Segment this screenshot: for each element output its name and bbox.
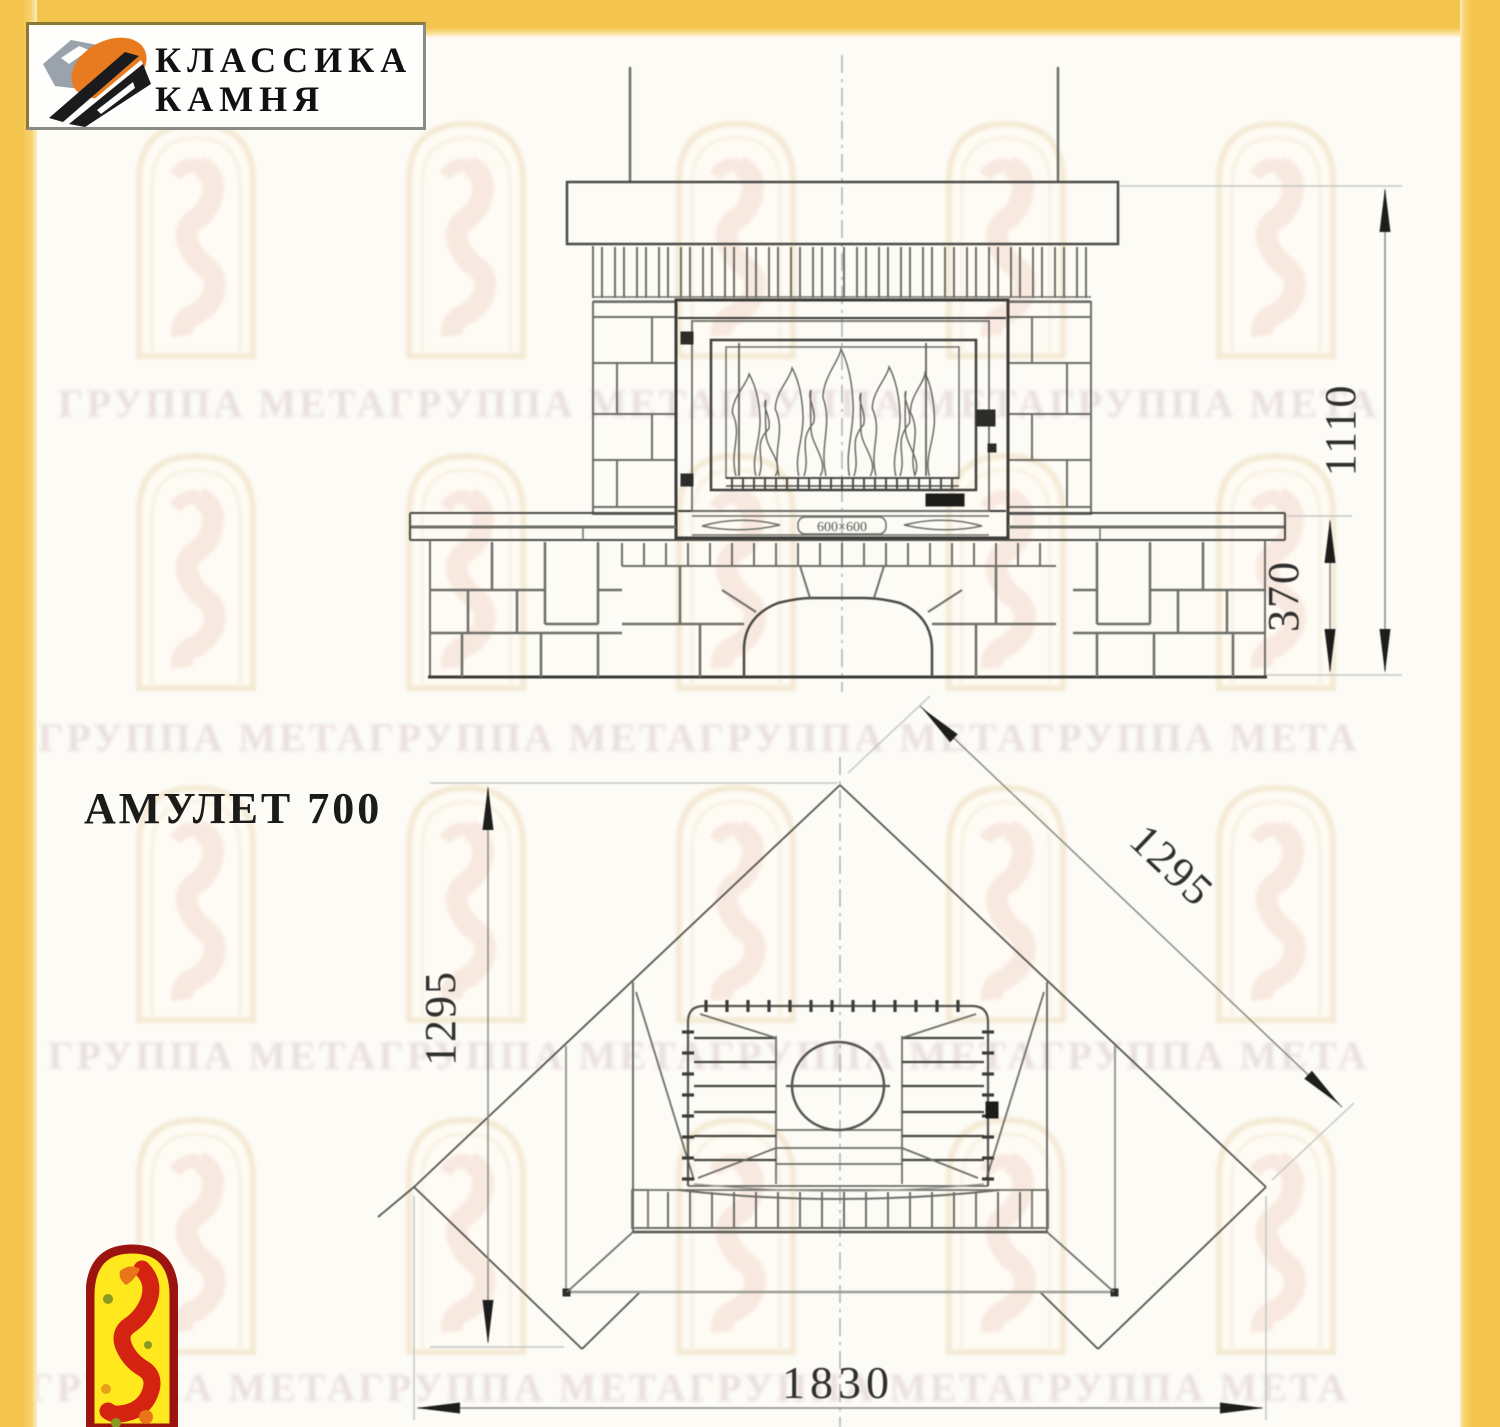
svg-text:1295: 1295: [1120, 815, 1223, 917]
svg-text:600×600: 600×600: [817, 520, 867, 535]
svg-text:1295: 1295: [416, 970, 465, 1066]
svg-text:1110: 1110: [1316, 384, 1365, 477]
svg-text:1830: 1830: [782, 1357, 894, 1408]
svg-text:370: 370: [1259, 560, 1308, 632]
